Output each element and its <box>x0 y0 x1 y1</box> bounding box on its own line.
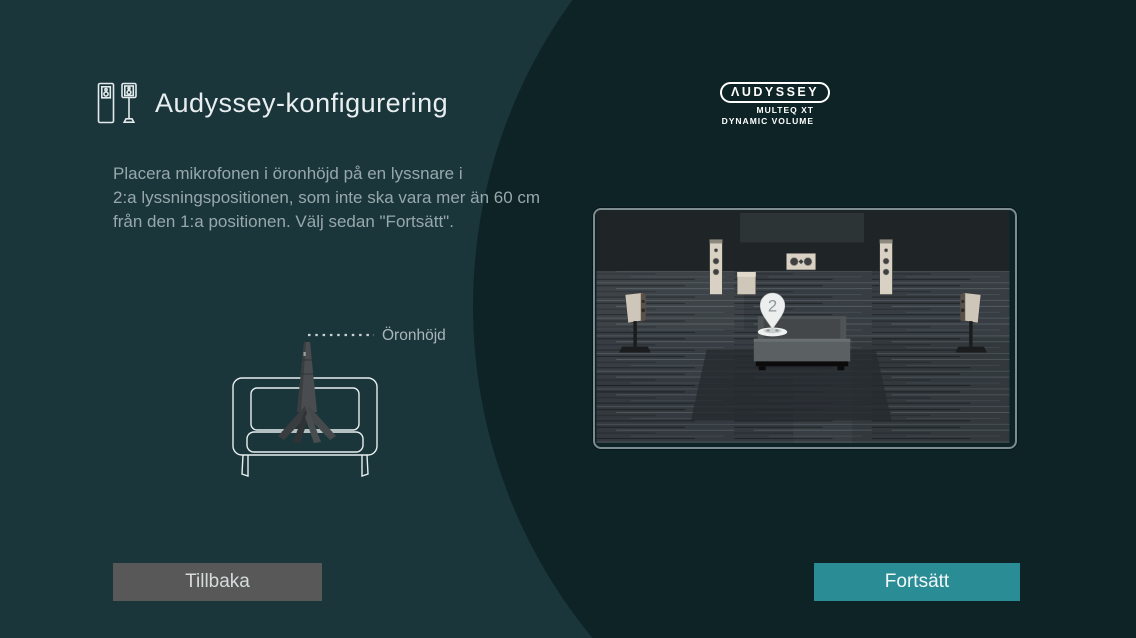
tv-screen <box>740 213 864 242</box>
dynamic-volume-label: DYNAMIC VOLUME <box>720 116 814 127</box>
setup-microphone <box>278 342 336 443</box>
back-button-label: Tillbaka <box>185 571 250 593</box>
subwoofer <box>737 272 756 295</box>
page-title: Audyssey-konfigurering <box>155 88 448 119</box>
tower-speakers-icon <box>97 82 141 124</box>
pin-number: 2 <box>768 296 777 315</box>
continue-button[interactable]: Fortsätt <box>814 563 1020 601</box>
header: Audyssey-konfigurering <box>97 82 448 124</box>
back-button[interactable]: Tillbaka <box>113 563 322 601</box>
instruction-line-2: 2:a lyssningspositionen, som inte ska va… <box>113 186 593 210</box>
audyssey-brand-badge: ΛUDYSSEY MULTEQ XT DYNAMIC VOLUME <box>720 82 814 127</box>
front-left-speaker <box>710 239 723 294</box>
instruction-line-1: Placera mikrofonen i öronhöjd på en lyss… <box>113 162 593 186</box>
instruction-line-3: från den 1:a positionen. Välj sedan "For… <box>113 210 593 234</box>
audyssey-logo: ΛUDYSSEY <box>720 82 830 103</box>
continue-button-label: Fortsätt <box>885 571 949 593</box>
front-right-speaker <box>880 239 893 294</box>
instruction-text: Placera mikrofonen i öronhöjd på en lyss… <box>113 162 593 234</box>
multeq-xt-label: MULTEQ XT <box>720 105 814 116</box>
room-sofa <box>754 316 850 370</box>
audyssey-setup-screen: Audyssey-konfigurering ΛUDYSSEY MULTEQ X… <box>0 0 1136 638</box>
center-speaker <box>786 253 815 270</box>
sofa-mic-illustration <box>222 326 392 488</box>
room-illustration: 2 <box>593 208 1017 449</box>
